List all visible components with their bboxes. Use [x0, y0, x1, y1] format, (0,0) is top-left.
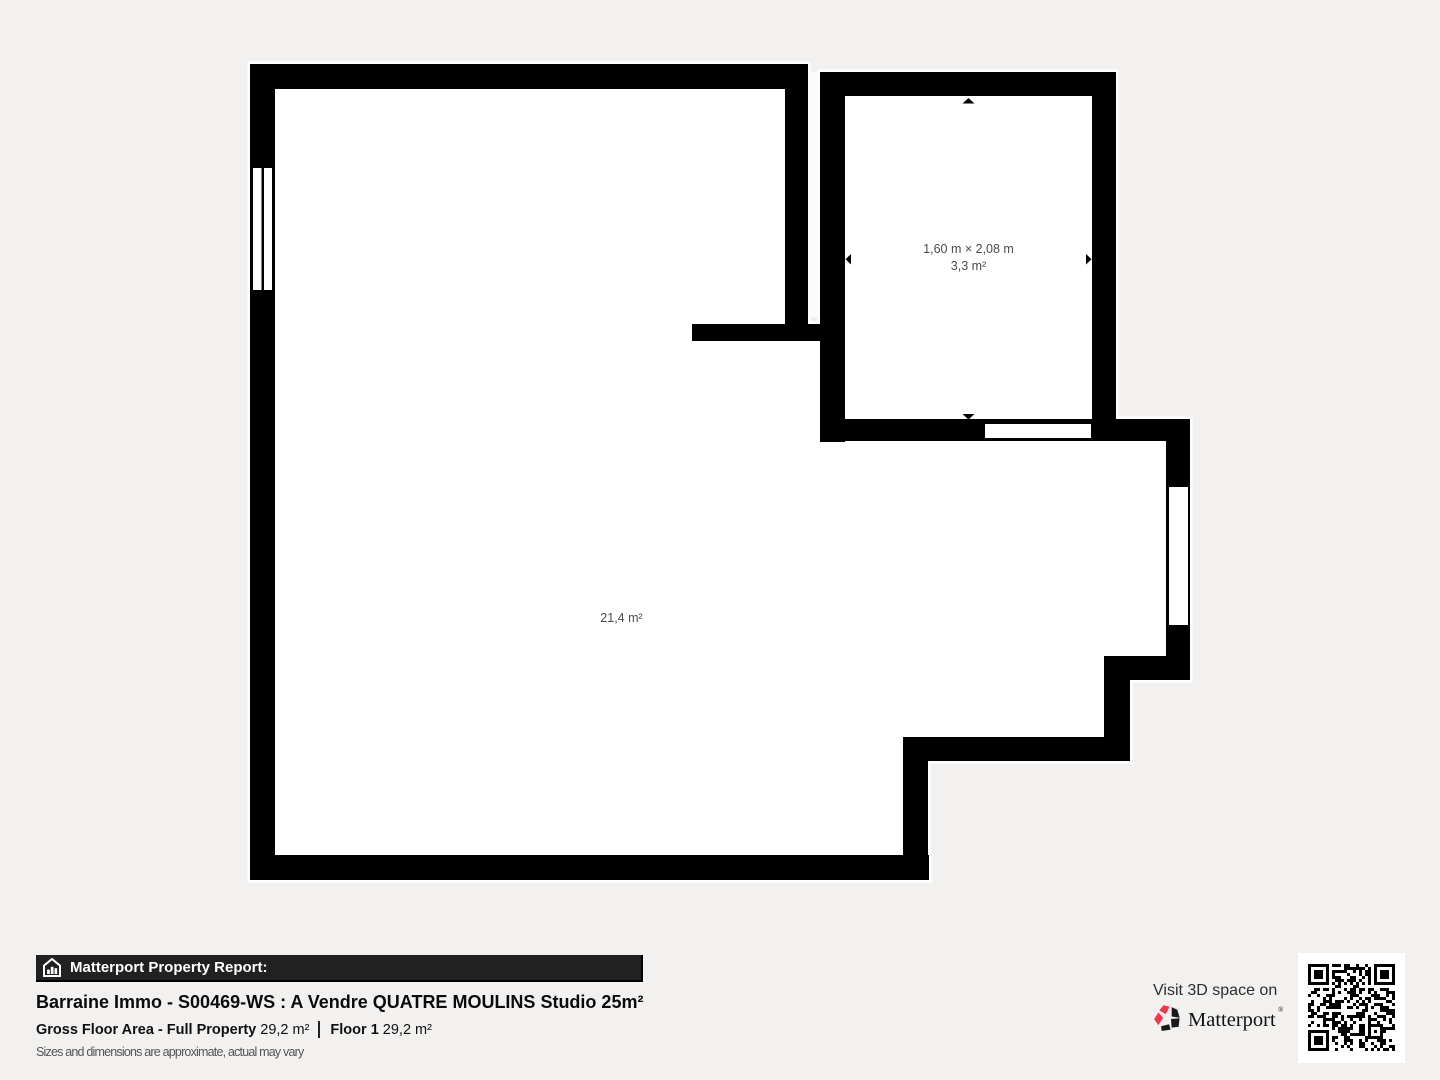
svg-text:21,4 m²: 21,4 m²: [600, 611, 642, 625]
svg-text:1,60 m × 2,08 m: 1,60 m × 2,08 m: [923, 242, 1014, 256]
svg-text:Matterport: Matterport: [1188, 1009, 1276, 1031]
svg-text:®: ®: [1278, 1006, 1284, 1014]
svg-text:3,3 m²: 3,3 m²: [951, 259, 986, 273]
